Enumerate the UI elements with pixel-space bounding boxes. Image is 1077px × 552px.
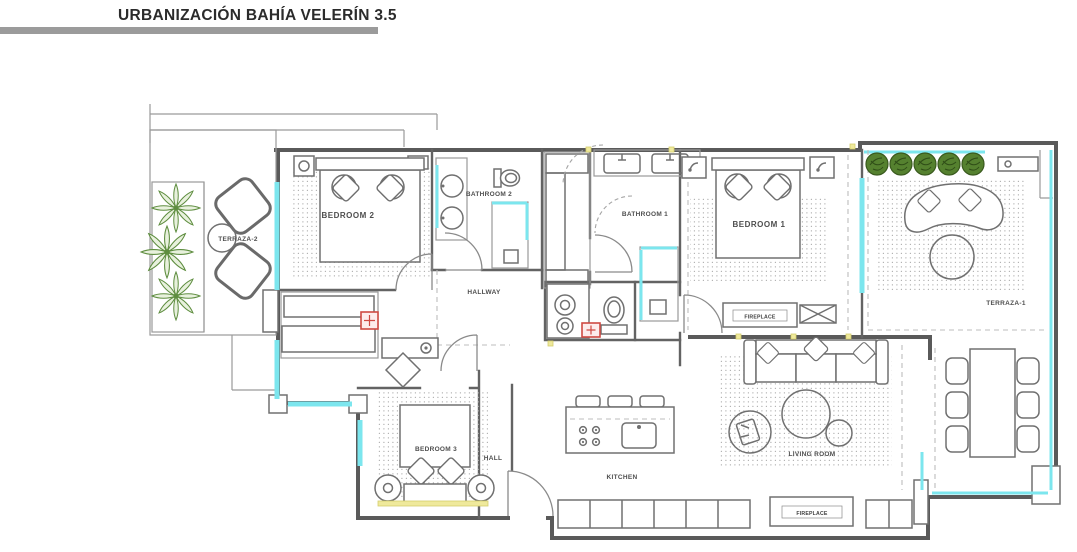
living-room bbox=[718, 336, 892, 466]
dining-area bbox=[946, 349, 1039, 457]
label-bedroom-3: BEDROOM 3 bbox=[415, 446, 457, 453]
wall-light-icon bbox=[998, 157, 1038, 171]
toilet-icon bbox=[601, 297, 627, 334]
desk-icon bbox=[382, 338, 438, 358]
floor-plan-page: URBANIZACIÓN BAHÍA VELERÍN 3.5 bbox=[0, 0, 1077, 552]
nightstand-icon bbox=[294, 156, 314, 176]
shower-icon bbox=[640, 247, 678, 321]
terrace-2-furniture bbox=[141, 175, 274, 320]
sink-icon bbox=[441, 175, 463, 229]
sink-icon bbox=[604, 154, 688, 173]
label-kitchen: KITCHEN bbox=[607, 474, 638, 481]
label-living-room: LIVING ROOM bbox=[789, 451, 836, 458]
bathroom-2 bbox=[436, 158, 528, 268]
bush-icon bbox=[866, 153, 984, 175]
toilet-icon bbox=[494, 169, 520, 187]
tv-unit-icon bbox=[800, 305, 836, 323]
wardrobe bbox=[544, 152, 590, 288]
label-bedroom-2: BEDROOM 2 bbox=[322, 211, 375, 220]
label-hall: HALL bbox=[484, 455, 503, 462]
desk-nook bbox=[382, 338, 438, 387]
label-bathroom-1: BATHROOM 1 bbox=[622, 211, 668, 218]
label-bathroom-2: BATHROOM 2 bbox=[466, 191, 512, 198]
floor-plan-drawing: TERRAZA-2 BEDROOM 2 BATHROOM 2 BATHROOM … bbox=[0, 0, 1077, 552]
bed-icon bbox=[400, 405, 470, 467]
dining-table-icon bbox=[970, 349, 1015, 457]
bar-stool-icon bbox=[576, 396, 664, 407]
label-fireplace-bedroom: FIREPLACE bbox=[744, 315, 776, 321]
window-sill bbox=[378, 501, 488, 506]
sofa-icon bbox=[744, 336, 888, 384]
kitchen-cabinets bbox=[558, 500, 912, 528]
electrical-marker-icon bbox=[361, 312, 378, 329]
walkin-closet bbox=[281, 292, 378, 358]
shower-icon bbox=[492, 202, 528, 268]
label-hallway: HALLWAY bbox=[467, 289, 501, 296]
bathroom-1 bbox=[547, 150, 700, 338]
electrical-marker-icon bbox=[582, 323, 600, 337]
label-fireplace-kitchen: FIREPLACE bbox=[796, 511, 828, 517]
terrace-1 bbox=[866, 153, 1038, 293]
label-terraza-1: TERRAZA-1 bbox=[986, 300, 1026, 307]
label-terraza-2: TERRAZA-2 bbox=[218, 236, 258, 243]
label-bedroom-1: BEDROOM 1 bbox=[733, 220, 786, 229]
